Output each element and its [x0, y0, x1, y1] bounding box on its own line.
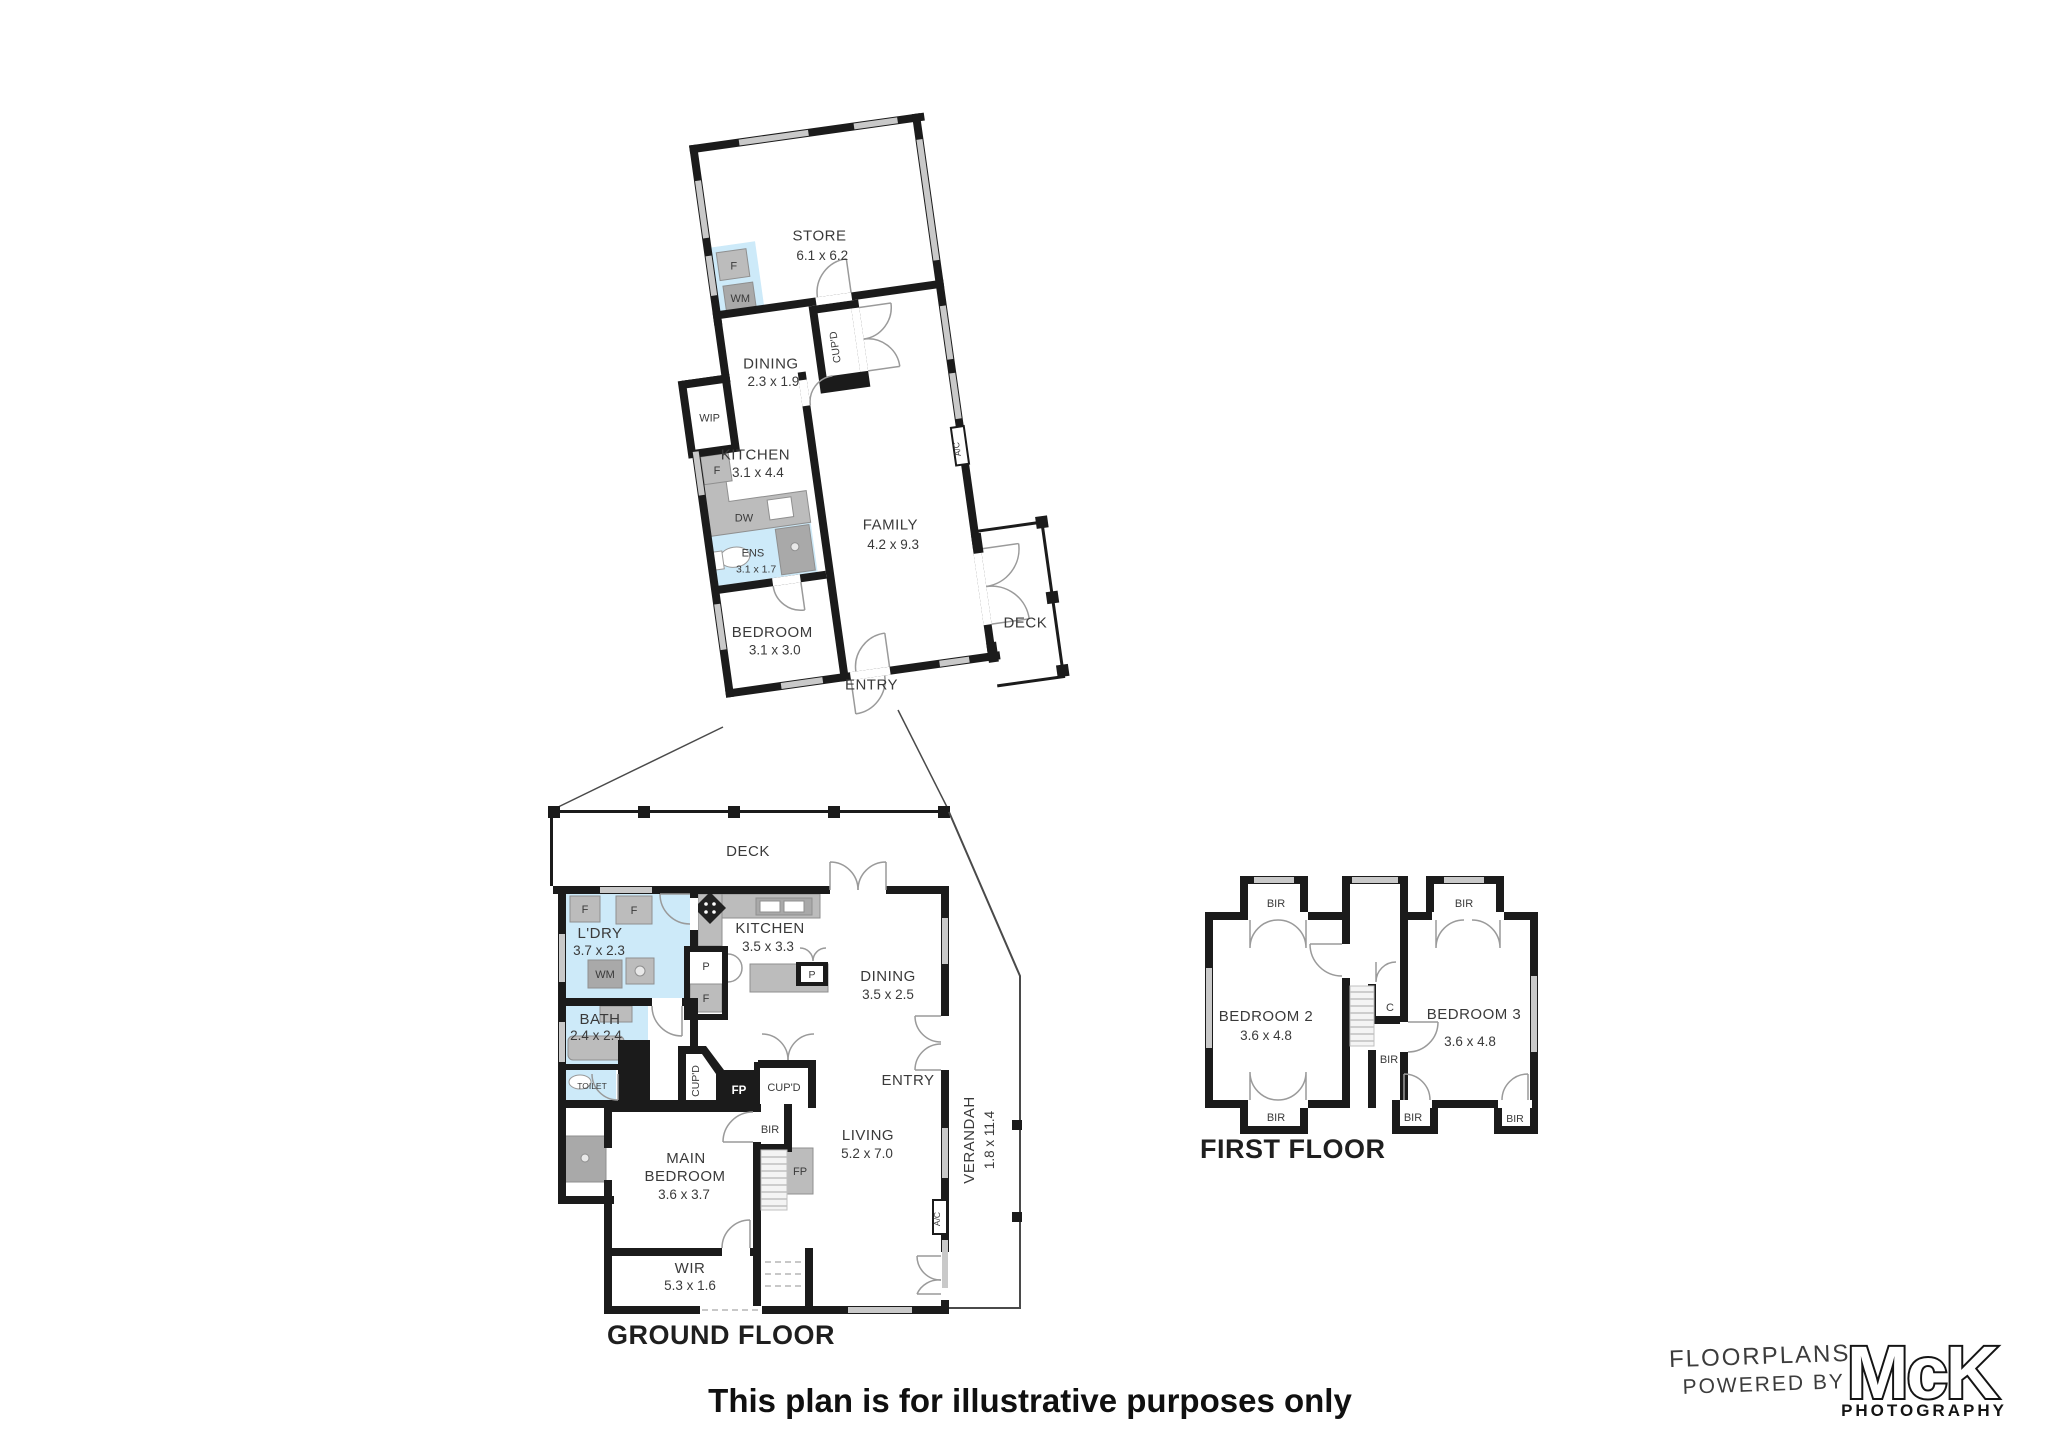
- logo-photography-text: PHOTOGRAPHY: [1841, 1401, 2007, 1420]
- deck-label: DECK: [1004, 614, 1048, 631]
- kitchen-fridge-label: F: [703, 993, 710, 1005]
- dining-dims: 3.5 x 2.5: [862, 987, 914, 1002]
- closet-label: C: [1386, 1002, 1394, 1014]
- entry-label: ENTRY: [845, 676, 898, 693]
- living-dims: 5.2 x 7.0: [841, 1146, 893, 1161]
- bedroom2-dims: 3.6 x 4.8: [1240, 1028, 1292, 1043]
- washing-machine-label: WM: [731, 293, 751, 305]
- bath-dims: 2.4 x 2.4: [570, 1028, 622, 1043]
- dishwasher-label: DW: [735, 513, 754, 525]
- fireplace2-label: FP: [793, 1166, 807, 1178]
- ground-floor-title: GROUND FLOOR: [607, 1320, 835, 1350]
- main-bedroom-label1: MAIN: [666, 1150, 706, 1167]
- store-label: STORE: [793, 227, 847, 244]
- fridge2-label: F: [631, 905, 638, 917]
- kitchen-dims: 3.1 x 4.4: [732, 465, 784, 480]
- bir-bottom-right-label: BIR: [1506, 1113, 1524, 1125]
- ens-label: ENS: [742, 548, 765, 560]
- floorplan-canvas: STORE 6.1 x 6.2 F WM DINING 2.3 x 1.9 WI…: [0, 0, 2048, 1451]
- main-bedroom-dims: 3.6 x 3.7: [658, 1187, 710, 1202]
- verandah-outline: [949, 812, 1020, 1308]
- bedroom-label: BEDROOM: [732, 624, 813, 641]
- wir-label: WIR: [675, 1260, 706, 1277]
- bedroom3-dims: 3.6 x 4.8: [1444, 1034, 1496, 1049]
- island-pantry-label: P: [808, 969, 815, 981]
- family-label: FAMILY: [863, 516, 918, 533]
- logo-floorplans-text: FLOORPLANS: [1669, 1340, 1851, 1373]
- understair-dashes: [765, 1262, 803, 1286]
- store-dims: 6.1 x 6.2: [796, 248, 848, 263]
- toilet-label: TOILET: [577, 1081, 607, 1091]
- ground-stairs: [761, 1150, 787, 1210]
- fireplace-label: FP: [732, 1085, 747, 1097]
- verandah-post: [1012, 1120, 1022, 1130]
- wir-dims: 5.3 x 1.6: [664, 1278, 716, 1293]
- dining-dims: 2.3 x 1.9: [747, 374, 799, 389]
- entry-label: ENTRY: [881, 1072, 934, 1089]
- shower-tap-icon: [790, 542, 799, 551]
- bedroom3-label: BEDROOM 3: [1427, 1006, 1522, 1023]
- main-bedroom-label2: BEDROOM: [644, 1168, 725, 1185]
- fridge-label: F: [730, 261, 737, 273]
- bir-top-left-label: BIR: [1267, 898, 1285, 910]
- footer: This plan is for illustrative purposes o…: [708, 1331, 2007, 1420]
- washing-machine-label: WM: [595, 969, 615, 981]
- cupboard-angled-label: CUP'D: [690, 1065, 702, 1097]
- kitchen-dims: 3.5 x 3.3: [742, 939, 794, 954]
- kitchen-label: KITCHEN: [735, 920, 804, 937]
- upper-floor-plan: STORE 6.1 x 6.2 F WM DINING 2.3 x 1.9 WI…: [645, 103, 1070, 732]
- aircon-label: A/C: [932, 1212, 942, 1226]
- verandah-post: [1012, 1212, 1022, 1222]
- disclaimer-text: This plan is for illustrative purposes o…: [708, 1382, 1352, 1419]
- kitchen-label: KITCHEN: [721, 446, 790, 463]
- laundry-dims: 3.7 x 2.3: [573, 943, 625, 958]
- ground-floor-plan: DECK F F L'DRY 3.7 x 2.3 WM KITCHEN 3.5 …: [548, 806, 1022, 1350]
- cupboard-label: CUP'D: [767, 1082, 800, 1094]
- bir-label: BIR: [761, 1124, 779, 1136]
- verandah-dims: 1.8 x 11.4: [982, 1110, 997, 1169]
- kitchen-fridge-label: F: [714, 465, 721, 477]
- sink-icon: [767, 497, 794, 520]
- bedroom-dims: 3.1 x 3.0: [749, 643, 801, 658]
- dining-label: DINING: [860, 968, 916, 985]
- dining-label: DINING: [743, 355, 799, 372]
- ens-dims: 3.1 x 1.7: [736, 563, 776, 575]
- bir-top-right-label: BIR: [1455, 898, 1473, 910]
- family-dims: 4.2 x 9.3: [867, 537, 919, 552]
- pantry-label: P: [702, 961, 709, 973]
- first-floor-title: FIRST FLOOR: [1200, 1134, 1385, 1164]
- bath-label: BATH: [580, 1011, 621, 1028]
- bir-bottom-left-label: BIR: [1267, 1112, 1285, 1124]
- deck-label: DECK: [726, 843, 770, 860]
- living-label: LIVING: [842, 1127, 894, 1144]
- bir-middle-label: BIR: [1380, 1054, 1398, 1066]
- fridge1-label: F: [582, 904, 589, 916]
- laundry-label: L'DRY: [577, 925, 622, 942]
- wip-label: WIP: [699, 412, 720, 424]
- connector-lines: [552, 710, 949, 811]
- bir-bottom-middle-label: BIR: [1404, 1112, 1422, 1124]
- aircon-label: A/C: [951, 442, 963, 457]
- bedroom2-label: BEDROOM 2: [1219, 1008, 1314, 1025]
- first-stairs: [1350, 986, 1374, 1046]
- verandah-label: VERANDAH: [961, 1096, 978, 1183]
- floorplan-page: STORE 6.1 x 6.2 F WM DINING 2.3 x 1.9 WI…: [0, 0, 2048, 1451]
- first-floor-plan: BIR BIR BEDROOM 2 3.6 x 4.8 BEDROOM 3 3.…: [1200, 876, 1538, 1164]
- logo-powered-by-text: POWERED BY: [1682, 1370, 1845, 1399]
